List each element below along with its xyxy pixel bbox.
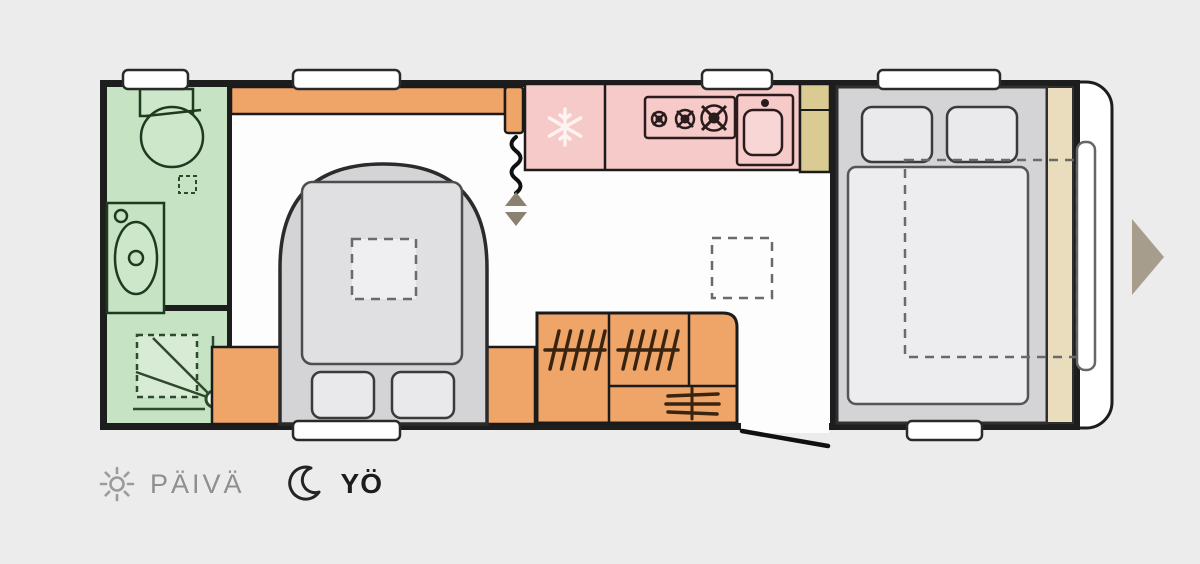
day-view-toggle[interactable]: PÄIVÄ <box>98 465 245 503</box>
pillow <box>312 372 374 418</box>
moon-icon <box>287 464 327 504</box>
entry-door <box>741 421 829 446</box>
pillow <box>862 107 932 162</box>
triangle-right-arrow-icon <box>1132 219 1164 295</box>
toilet <box>140 89 203 167</box>
bedroom <box>834 84 1078 426</box>
kitchen <box>525 84 800 170</box>
carousel-next-button[interactable] <box>1132 219 1164 295</box>
wardrobe <box>537 313 737 423</box>
hob-3-burners <box>645 97 735 138</box>
tall-cabinet <box>800 84 830 172</box>
day-view-label: PÄIVÄ <box>150 469 245 500</box>
window <box>878 70 1000 89</box>
washbasin <box>107 203 164 313</box>
pillow <box>947 107 1017 162</box>
window <box>293 70 400 89</box>
window <box>293 421 400 440</box>
headboard-shelf <box>1047 87 1073 423</box>
sun-icon <box>98 465 136 503</box>
pillow <box>392 372 454 418</box>
bottom-cabinet-mid <box>487 347 535 424</box>
window <box>907 421 982 440</box>
view-toggle-legend: PÄIVÄ YÖ <box>98 462 383 506</box>
duvet <box>848 167 1028 404</box>
window <box>702 70 772 89</box>
bottom-cabinet-left <box>212 347 280 424</box>
front-window <box>1077 142 1095 370</box>
dinette-bed <box>280 164 487 424</box>
night-view-toggle[interactable]: YÖ <box>287 464 383 504</box>
folding-table-marker <box>352 239 416 299</box>
kitchen-sink <box>737 95 793 165</box>
window <box>123 70 188 89</box>
night-view-label: YÖ <box>341 468 383 500</box>
